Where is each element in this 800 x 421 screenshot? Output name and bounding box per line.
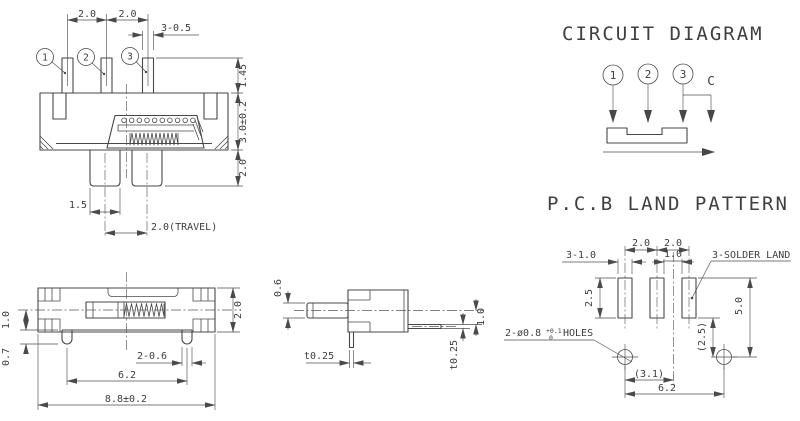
side-body bbox=[348, 290, 408, 332]
pin-balloons: 1 2 3 bbox=[37, 48, 148, 76]
dim-pad-pitch-right: 2.0 bbox=[664, 238, 682, 249]
hole-pitch-dimensions: (3.1) 6.2 bbox=[625, 366, 724, 398]
dim-leg-pitch: 6.2 bbox=[118, 370, 136, 381]
dim-pad-width: 3-1.0 bbox=[566, 250, 596, 261]
circuit-diagram: CIRCUIT DIAGRAM 1 2 3 C bbox=[562, 23, 764, 152]
dim-pad-pitch-left: 2.0 bbox=[632, 238, 650, 249]
dim-hole-offset-v: (2.5) bbox=[697, 322, 708, 352]
circuit-arrows bbox=[613, 85, 711, 123]
slider-contact-symbol bbox=[607, 128, 687, 143]
dim-knob-width: 1.5 bbox=[69, 200, 87, 211]
left-tab bbox=[53, 93, 66, 119]
bottom-pin bbox=[350, 332, 354, 348]
dim-hole-to-center: (3.1) bbox=[634, 369, 664, 380]
dim-leg-height: 2.0 bbox=[238, 159, 249, 177]
dim-shaft-thickness: 0.6 bbox=[273, 279, 284, 297]
dim-bottom-pin-thickness: t0.25 bbox=[304, 351, 334, 362]
bottom-view: 1.0 0.7 2.0 2-0.6 6.2 8.8±0.2 bbox=[1, 272, 244, 410]
circuit-pin-3-label: 3 bbox=[680, 68, 687, 81]
dim-center-to-edge: 1.0 bbox=[1, 311, 12, 329]
side-view: 0.6 t0.25 1.0 t0.25 bbox=[273, 279, 487, 370]
dim-hole-pitch: 6.2 bbox=[658, 383, 676, 394]
solder-land-label: 3-SOLDER LAND bbox=[712, 250, 790, 261]
holes-suffix: HOLES bbox=[563, 328, 593, 339]
common-terminal-label: C bbox=[707, 73, 715, 88]
dim-plate-offset: 0.7 bbox=[1, 348, 12, 366]
front-view-dimensions: 2.0 2.0 3-0.5 1.45 3.0±0.2 2.0 1.5 2.0(T… bbox=[68, 9, 250, 233]
right-tab bbox=[204, 93, 217, 119]
dim-frame-width: 2.0 bbox=[233, 301, 244, 319]
dim-pad-gap: 1.0 bbox=[664, 249, 682, 260]
pin-1-label: 1 bbox=[42, 53, 48, 64]
dim-total-length: 8.8±0.2 bbox=[105, 394, 147, 405]
centerlines bbox=[105, 84, 147, 236]
mounting-holes bbox=[612, 344, 737, 370]
top-slot bbox=[108, 288, 178, 297]
pad-centerlines bbox=[625, 246, 689, 386]
dim-pad-height: 2.5 bbox=[584, 289, 595, 307]
dim-pin-width: 3-0.5 bbox=[161, 23, 191, 34]
dim-side-pin-thickness: t0.25 bbox=[449, 340, 460, 370]
pcb-land-pattern: P.C.B LAND PATTERN 2.0 2.0 3-1.0 1.0 3-S… bbox=[504, 193, 791, 398]
pin-3-label: 3 bbox=[127, 52, 133, 63]
pcb-land-pattern-title: P.C.B LAND PATTERN bbox=[547, 193, 789, 215]
circuit-diagram-title: CIRCUIT DIAGRAM bbox=[562, 23, 764, 45]
dim-pitch-left: 2.0 bbox=[78, 9, 96, 20]
dim-pad-to-hole: 5.0 bbox=[734, 297, 745, 315]
dim-leg-width: 2-0.6 bbox=[137, 351, 167, 362]
dim-travel: 2.0(TRAVEL) bbox=[151, 222, 217, 233]
technical-drawing: 1 2 3 2.0 2.0 3-0.5 1.45 3.0±0.2 2.0 bbox=[0, 0, 800, 421]
drawing-sheet: 1 2 3 2.0 2.0 3-0.5 1.45 3.0±0.2 2.0 bbox=[0, 0, 800, 421]
front-view: 1 2 3 2.0 2.0 3-0.5 1.45 3.0±0.2 2.0 bbox=[37, 9, 250, 236]
holes-label: 2-ø0.8 bbox=[505, 328, 541, 339]
dim-pitch-right: 2.0 bbox=[118, 9, 136, 20]
holes-tol-lower: 0 bbox=[549, 334, 553, 342]
circuit-pin-1-label: 1 bbox=[610, 69, 617, 82]
dim-pin-offset: 1.0 bbox=[476, 308, 487, 326]
land-pattern-dimensions: 2.0 2.0 3-1.0 1.0 3-SOLDER LAND 2.5 5.0 … bbox=[562, 238, 791, 357]
dim-body-height: 3.0±0.2 bbox=[238, 101, 249, 143]
pin-2-label: 2 bbox=[83, 53, 89, 64]
dim-pin-height: 1.45 bbox=[238, 64, 249, 88]
circuit-pin-2-label: 2 bbox=[645, 68, 652, 81]
side-view-dimensions: 0.6 t0.25 1.0 t0.25 bbox=[273, 279, 487, 370]
